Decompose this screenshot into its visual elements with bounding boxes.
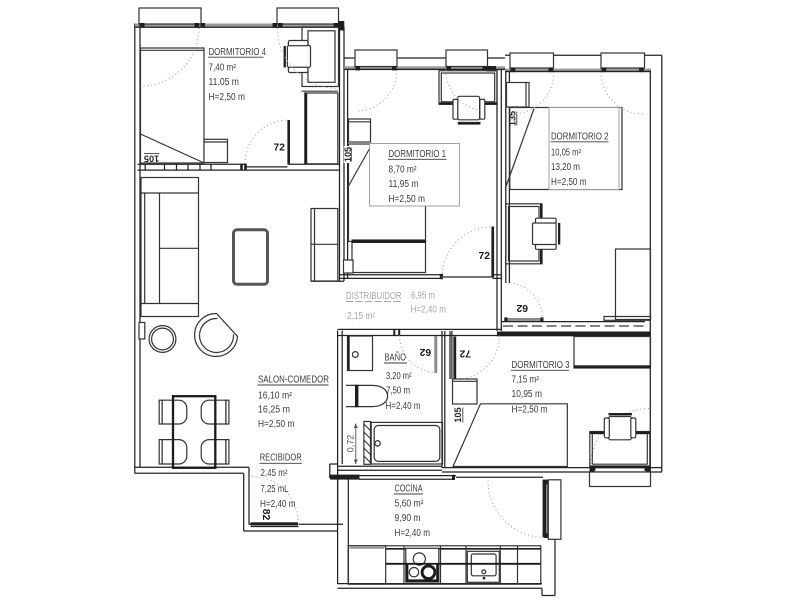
svg-text:10,05 m²: 10,05 m² <box>551 148 582 159</box>
svg-text:2,45 m²: 2,45 m² <box>261 468 289 479</box>
svg-text:DORMITORIO 2: DORMITORIO 2 <box>551 132 609 143</box>
svg-text:BAÑO: BAÑO <box>385 353 407 364</box>
svg-text:72: 72 <box>274 143 286 154</box>
svg-text:7,25 mL: 7,25 mL <box>261 484 289 495</box>
svg-text:H=2,40 m: H=2,40 m <box>395 528 431 539</box>
svg-text:2,15 m²: 2,15 m² <box>347 311 376 322</box>
svg-text:6,95 m: 6,95 m <box>411 291 435 302</box>
svg-text:13,20 m: 13,20 m <box>551 162 580 173</box>
svg-text:5,60 m²: 5,60 m² <box>395 499 425 510</box>
svg-text:H=2,40 m: H=2,40 m <box>411 305 447 316</box>
svg-text:7,50 m: 7,50 m <box>386 386 410 397</box>
svg-text:DORMITORIO 3: DORMITORIO 3 <box>512 360 570 371</box>
svg-text:105: 105 <box>343 147 353 162</box>
svg-text:135: 135 <box>507 111 517 126</box>
svg-text:11,05 m: 11,05 m <box>209 77 240 88</box>
svg-text:105: 105 <box>453 407 463 422</box>
svg-text:72: 72 <box>479 251 491 262</box>
svg-text:H=2,50 m: H=2,50 m <box>209 92 246 103</box>
svg-text:SALON-COMEDOR: SALON-COMEDOR <box>258 374 329 385</box>
svg-text:DISTRIBUIDOR: DISTRIBUIDOR <box>346 291 402 302</box>
svg-text:82: 82 <box>260 509 271 521</box>
svg-text:3,20 m²: 3,20 m² <box>386 371 412 382</box>
svg-text:7,40 m²: 7,40 m² <box>209 63 237 74</box>
svg-text:H=2,50 m: H=2,50 m <box>551 177 587 188</box>
svg-text:H=2,40 m: H=2,40 m <box>260 499 296 510</box>
svg-text:7,15 m²: 7,15 m² <box>512 374 540 385</box>
svg-text:H=2,40 m: H=2,40 m <box>386 401 421 412</box>
svg-text:H=2,50 m: H=2,50 m <box>258 419 295 430</box>
svg-text:H=2,50 m: H=2,50 m <box>512 405 548 416</box>
svg-text:COCINA: COCINA <box>395 484 423 495</box>
svg-text:62: 62 <box>419 346 431 357</box>
svg-text:11,95 m: 11,95 m <box>389 179 419 190</box>
svg-text:H=2,50 m: H=2,50 m <box>389 194 426 205</box>
svg-text:62: 62 <box>516 302 528 313</box>
svg-text:8,70 m²: 8,70 m² <box>389 165 418 176</box>
svg-text:DORMITORIO 1: DORMITORIO 1 <box>389 149 447 160</box>
svg-text:16,25 m: 16,25 m <box>258 405 290 416</box>
svg-text:16,10 m²: 16,10 m² <box>258 391 293 402</box>
svg-text:DORMITORIO 4: DORMITORIO 4 <box>209 47 267 58</box>
svg-text:9,90 m: 9,90 m <box>395 513 421 524</box>
svg-text:105: 105 <box>144 154 159 164</box>
svg-text:72: 72 <box>459 348 471 359</box>
svg-text:0,72: 0,72 <box>345 435 355 453</box>
svg-text:RECIBIDOR: RECIBIDOR <box>260 453 302 464</box>
svg-text:10,95 m: 10,95 m <box>512 389 543 400</box>
